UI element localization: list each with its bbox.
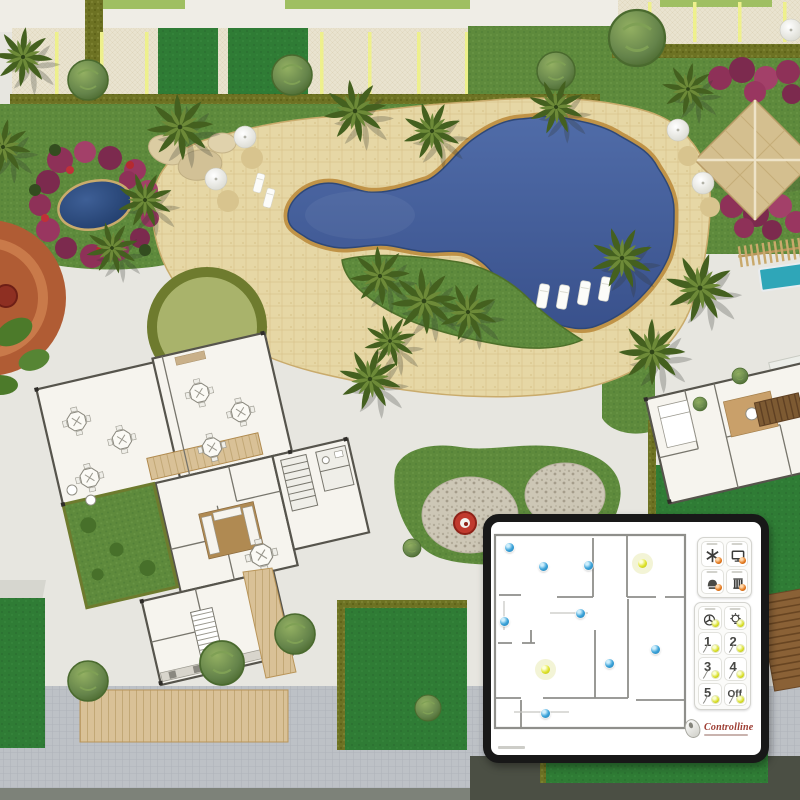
device-sensor-dot[interactable]: [505, 543, 514, 552]
indicator-yellow-dot: [737, 671, 744, 678]
light-on-dot[interactable]: [638, 559, 647, 568]
scene-button-1[interactable]: 1: [698, 632, 722, 656]
indicator-orange-dot: [715, 584, 722, 591]
scene-button-5[interactable]: 5: [698, 683, 722, 707]
scene-button-4[interactable]: 4: [724, 657, 748, 681]
device-button-tv[interactable]: [726, 541, 749, 567]
scene-control-card: 1 2 3 4 5 Off: [694, 602, 751, 710]
mouse-icon: [682, 717, 702, 740]
indicator-orange-dot: [715, 557, 722, 564]
home-automation-panel: 1 2 3 4 5 Off: [483, 514, 769, 763]
light-on-dot[interactable]: [541, 665, 550, 674]
indicator-yellow-dot: [712, 671, 719, 678]
indicator-orange-dot: [739, 584, 746, 591]
tagline-bar: [704, 734, 748, 736]
bottom-lawn: [0, 598, 45, 748]
device-sensor-dot[interactable]: [500, 617, 509, 626]
device-label-bar: [707, 571, 718, 573]
scene-button-light[interactable]: [724, 606, 748, 630]
device-button-lamp[interactable]: [701, 569, 724, 595]
brand-name: Controlline: [704, 722, 753, 733]
indicator-yellow-dot: [712, 620, 719, 627]
device-sensor-dot[interactable]: [584, 561, 593, 570]
device-control-card: [697, 537, 752, 598]
umbrella-icon: [234, 126, 256, 148]
device-label-bar: [707, 543, 718, 545]
indicator-yellow-dot: [737, 696, 744, 703]
device-label-bar: [731, 571, 742, 573]
device-sensor-dot[interactable]: [539, 562, 548, 571]
device-sensor-dot[interactable]: [605, 659, 614, 668]
scene-button-fan[interactable]: [698, 606, 722, 630]
device-button-ac[interactable]: [701, 541, 724, 567]
scene-button-3[interactable]: 3: [698, 657, 722, 681]
device-sensor-dot[interactable]: [651, 645, 660, 654]
wood-deck: [80, 690, 288, 742]
scene-label-bar: [730, 608, 741, 610]
device-sensor-dot[interactable]: [576, 609, 585, 618]
bottom-lawn: [345, 608, 467, 750]
device-button-blinds[interactable]: [726, 569, 749, 595]
indicator-yellow-dot: [737, 620, 744, 627]
planting-island: [158, 28, 218, 95]
indicator-yellow-dot: [712, 696, 719, 703]
scene-button-off[interactable]: Off: [724, 683, 748, 707]
indicator-yellow-dot: [737, 645, 744, 652]
floorplan-dots: [491, 522, 691, 750]
footnote-bar: [498, 746, 525, 749]
device-sensor-dot[interactable]: [541, 709, 550, 718]
device-label-bar: [731, 543, 742, 545]
scene-button-2[interactable]: 2: [724, 632, 748, 656]
controlline-logo: Controlline: [685, 719, 755, 738]
indicator-yellow-dot: [712, 645, 719, 652]
indicator-orange-dot: [739, 557, 746, 564]
scene-label-bar: [704, 608, 715, 610]
site-plan-screenshot: 1 2 3 4 5 Off: [0, 0, 800, 800]
